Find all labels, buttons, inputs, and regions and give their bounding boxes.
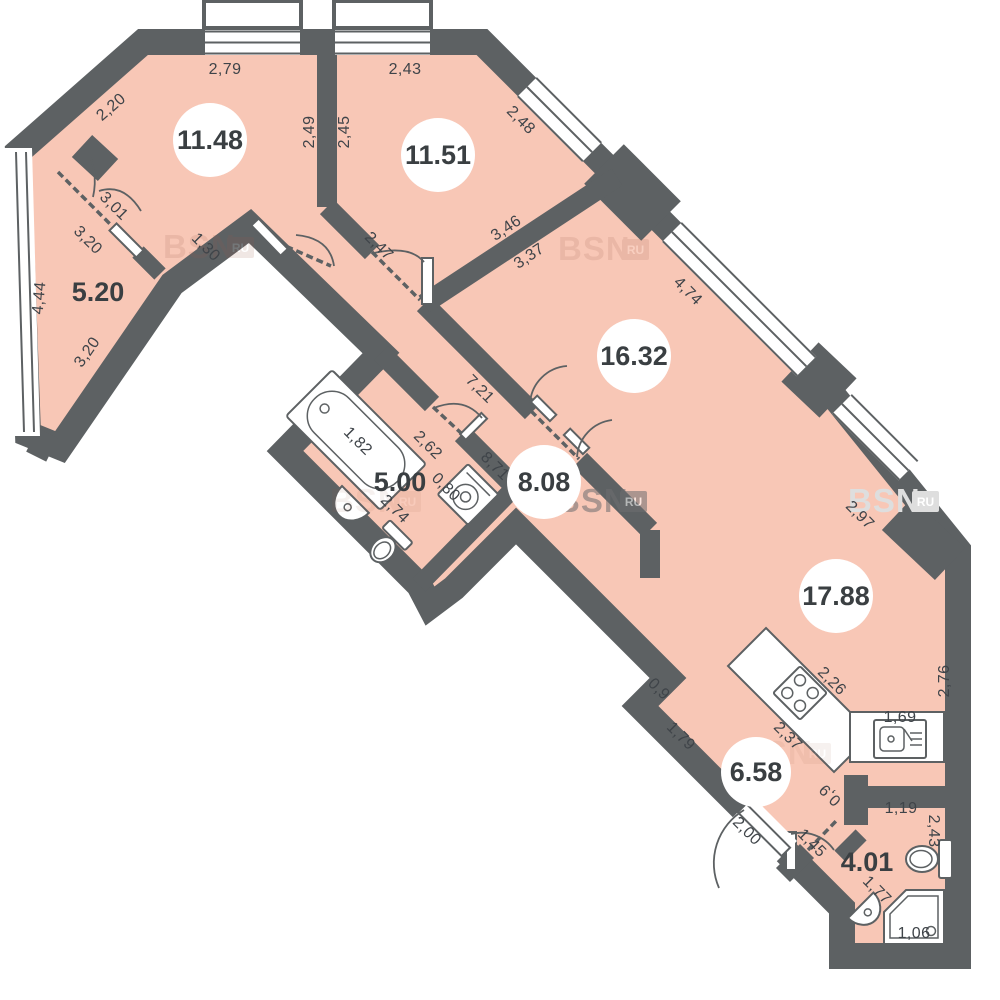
room-label-520: 5.20: [72, 277, 125, 307]
dimension-label: 2,43: [925, 815, 942, 848]
window-bay: [204, 1, 301, 28]
watermark-badge: RU: [917, 495, 934, 509]
watermark-text: BSN: [558, 230, 631, 267]
room-label-1151: 11.51: [401, 118, 475, 192]
room-label-658: 6.58: [721, 737, 791, 807]
room-area-label: 5.00: [374, 467, 427, 497]
dimension-label: 1,06: [898, 925, 931, 942]
room-area-label: 17.88: [802, 581, 870, 611]
room-label-401: 4.01: [841, 847, 894, 877]
room-label-1632: 16.32: [597, 319, 671, 393]
watermark-badge: RU: [809, 747, 826, 761]
room-area-label: 5.20: [72, 277, 125, 307]
room-area-label: 4.01: [841, 847, 894, 877]
dimension-label: 1,19: [885, 800, 918, 817]
room-label-500: 5.00: [374, 467, 427, 497]
floor-plan-page: BSN RU BSN RU BSN RU BSN RU BSN RU BSN R…: [0, 0, 1000, 1000]
floor-plan-image: BSN RU BSN RU BSN RU BSN RU BSN RU BSN R…: [0, 0, 1000, 1000]
room-label-1148: 11.48: [173, 103, 247, 177]
room-area-label: 16.32: [600, 341, 668, 371]
dimension-label: 2,76: [936, 665, 953, 698]
window-bay: [334, 1, 431, 28]
dimension-label: 2,43: [389, 61, 422, 78]
room-label-1788: 17.88: [799, 559, 873, 633]
room-area-label: 11.48: [177, 125, 243, 155]
dimension-label: 1,69: [884, 709, 917, 726]
dimension-label: 2,49: [301, 116, 318, 149]
watermark-badge: RU: [232, 241, 249, 255]
dimension-label: 4,44: [30, 281, 50, 315]
dimension-label: 2,45: [336, 116, 353, 149]
room-area-label: 6.58: [730, 757, 783, 787]
room-area-label: 8.08: [518, 467, 571, 497]
watermark-badge: RU: [625, 495, 642, 509]
room-label-808: 8.08: [507, 445, 581, 519]
dimension-label: 2,79: [209, 61, 242, 78]
room-area-label: 11.51: [405, 140, 471, 170]
watermark-badge: RU: [627, 243, 644, 257]
